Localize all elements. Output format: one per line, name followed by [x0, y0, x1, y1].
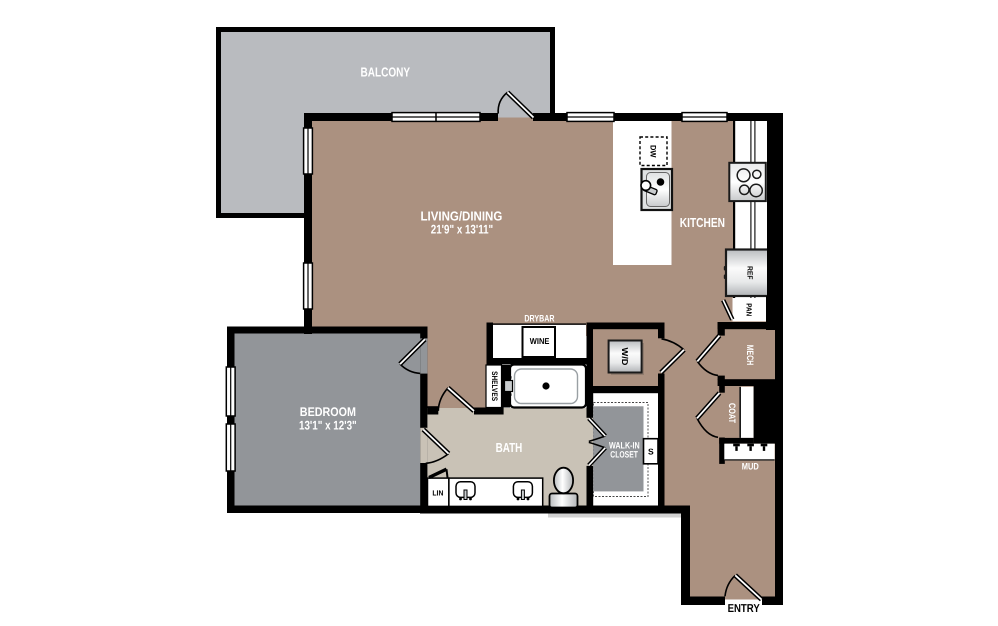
svg-text:W/D: W/D: [620, 348, 630, 366]
svg-text:DRYBAR: DRYBAR: [524, 314, 554, 325]
svg-text:SHELVES: SHELVES: [490, 371, 499, 401]
svg-text:PAN: PAN: [745, 303, 754, 316]
svg-text:S: S: [648, 446, 654, 456]
svg-text:BATH: BATH: [496, 440, 523, 455]
svg-text:13'1" x 12'3": 13'1" x 12'3": [299, 419, 357, 433]
svg-text:MECH: MECH: [745, 345, 756, 366]
svg-text:LIN: LIN: [432, 488, 443, 497]
svg-text:KITCHEN: KITCHEN: [680, 215, 725, 230]
svg-text:21'9" x 13'11": 21'9" x 13'11": [431, 223, 493, 237]
svg-text:MUD: MUD: [742, 461, 759, 472]
svg-text:CLOSET: CLOSET: [610, 450, 638, 460]
svg-text:DW: DW: [649, 145, 658, 158]
svg-text:BALCONY: BALCONY: [361, 65, 411, 80]
svg-text:LIVING/DINING: LIVING/DINING: [421, 208, 503, 223]
svg-text:REF: REF: [745, 266, 754, 280]
svg-text:COAT: COAT: [727, 403, 738, 423]
svg-text:WINE: WINE: [530, 336, 550, 346]
svg-text:BEDROOM: BEDROOM: [300, 405, 356, 419]
svg-text:ENTRY: ENTRY: [728, 603, 760, 615]
